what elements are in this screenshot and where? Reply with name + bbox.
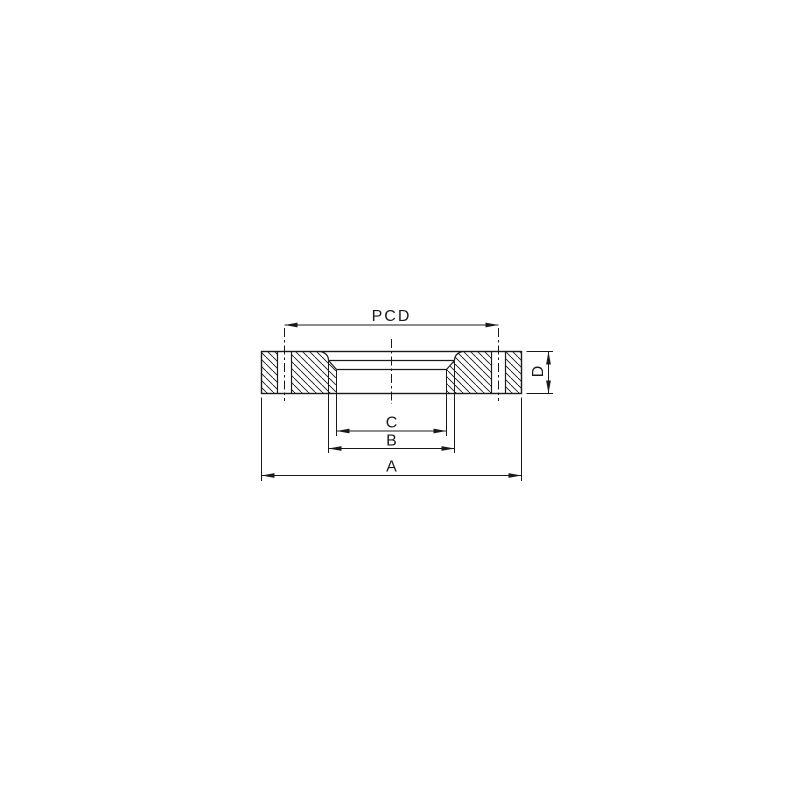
label-pcd: PCD [372,308,412,325]
drawing-canvas: PCD C B A D [0,0,799,800]
hatch-left-rim [262,352,278,394]
dimension-arrowheads [262,323,551,478]
arrow-a-left-icon [262,473,275,478]
arrow-d-top-icon [546,352,551,365]
hatch-right-hub [447,352,492,394]
arrow-c-left-icon [337,429,350,434]
label-a: A [386,459,397,476]
hatch-right-rim [506,352,522,394]
arrow-pcd-left-icon [285,323,298,328]
label-c: C [386,415,398,432]
arrow-b-right-icon [442,446,455,451]
flange-section-drawing: PCD C B A D [0,0,799,800]
hatch-left-hub [292,352,337,394]
arrow-pcd-right-icon [486,323,499,328]
label-b: B [386,433,397,450]
arrow-d-bottom-icon [546,381,551,394]
arrow-a-right-icon [509,473,522,478]
label-d: D [530,366,547,378]
dimension-lines [262,325,549,476]
arrow-b-left-icon [329,446,342,451]
arrow-c-right-icon [434,429,447,434]
